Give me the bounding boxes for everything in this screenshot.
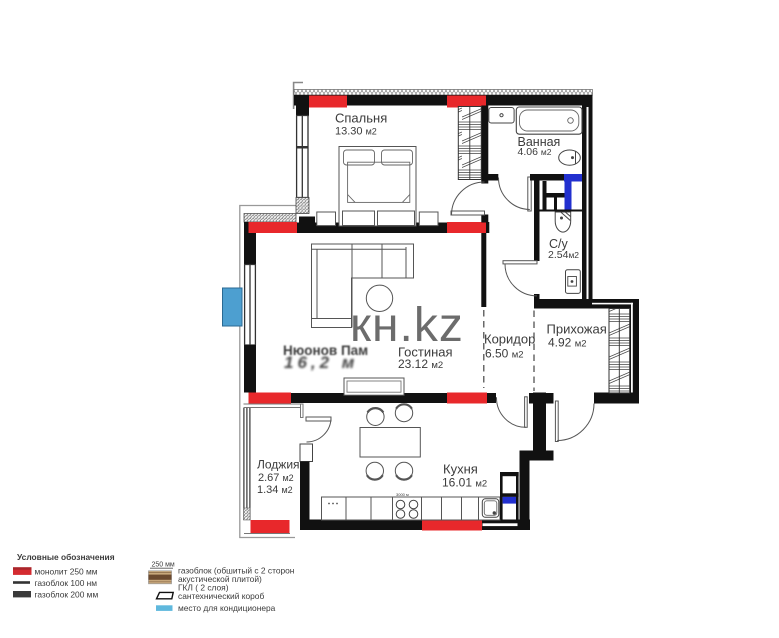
svg-text:Коридор: Коридор: [484, 332, 535, 347]
svg-text:13.30 м2: 13.30 м2: [335, 126, 377, 138]
svg-text:газоблок 200 мм: газоблок 200 мм: [35, 590, 99, 600]
svg-text:Спальня: Спальня: [335, 111, 387, 126]
svg-text:250 мм: 250 мм: [152, 562, 175, 569]
svg-text:23.12 м2: 23.12 м2: [398, 357, 443, 371]
svg-text:4.06 м2: 4.06 м2: [518, 146, 552, 158]
svg-text:2.54м2: 2.54м2: [548, 249, 579, 261]
svg-text:Условные обозначения: Условные обозначения: [17, 552, 115, 562]
svg-text:16.01 м2: 16.01 м2: [442, 476, 487, 490]
svg-text:монолит 250 мм: монолит 250 мм: [35, 567, 98, 577]
svg-text:6.50 м2: 6.50 м2: [485, 347, 524, 361]
svg-text:Кухня: Кухня: [443, 462, 478, 477]
svg-text:место для кондиционера: место для кондиционера: [178, 603, 276, 613]
svg-text:Прихожая: Прихожая: [547, 322, 607, 337]
svg-text:4.92 м2: 4.92 м2: [548, 336, 587, 350]
svg-text:3000 м: 3000 м: [396, 492, 409, 497]
svg-text:16,2 м: 16,2 м: [284, 353, 358, 372]
svg-text:2.67 м2: 2.67 м2: [258, 472, 294, 484]
svg-text:сантехнический короб: сантехнический короб: [178, 591, 264, 601]
svg-text:газоблок 100 нм: газоблок 100 нм: [35, 578, 98, 588]
svg-text:Лоджия: Лоджия: [257, 458, 300, 472]
svg-text:1.34 м2: 1.34 м2: [257, 484, 293, 496]
